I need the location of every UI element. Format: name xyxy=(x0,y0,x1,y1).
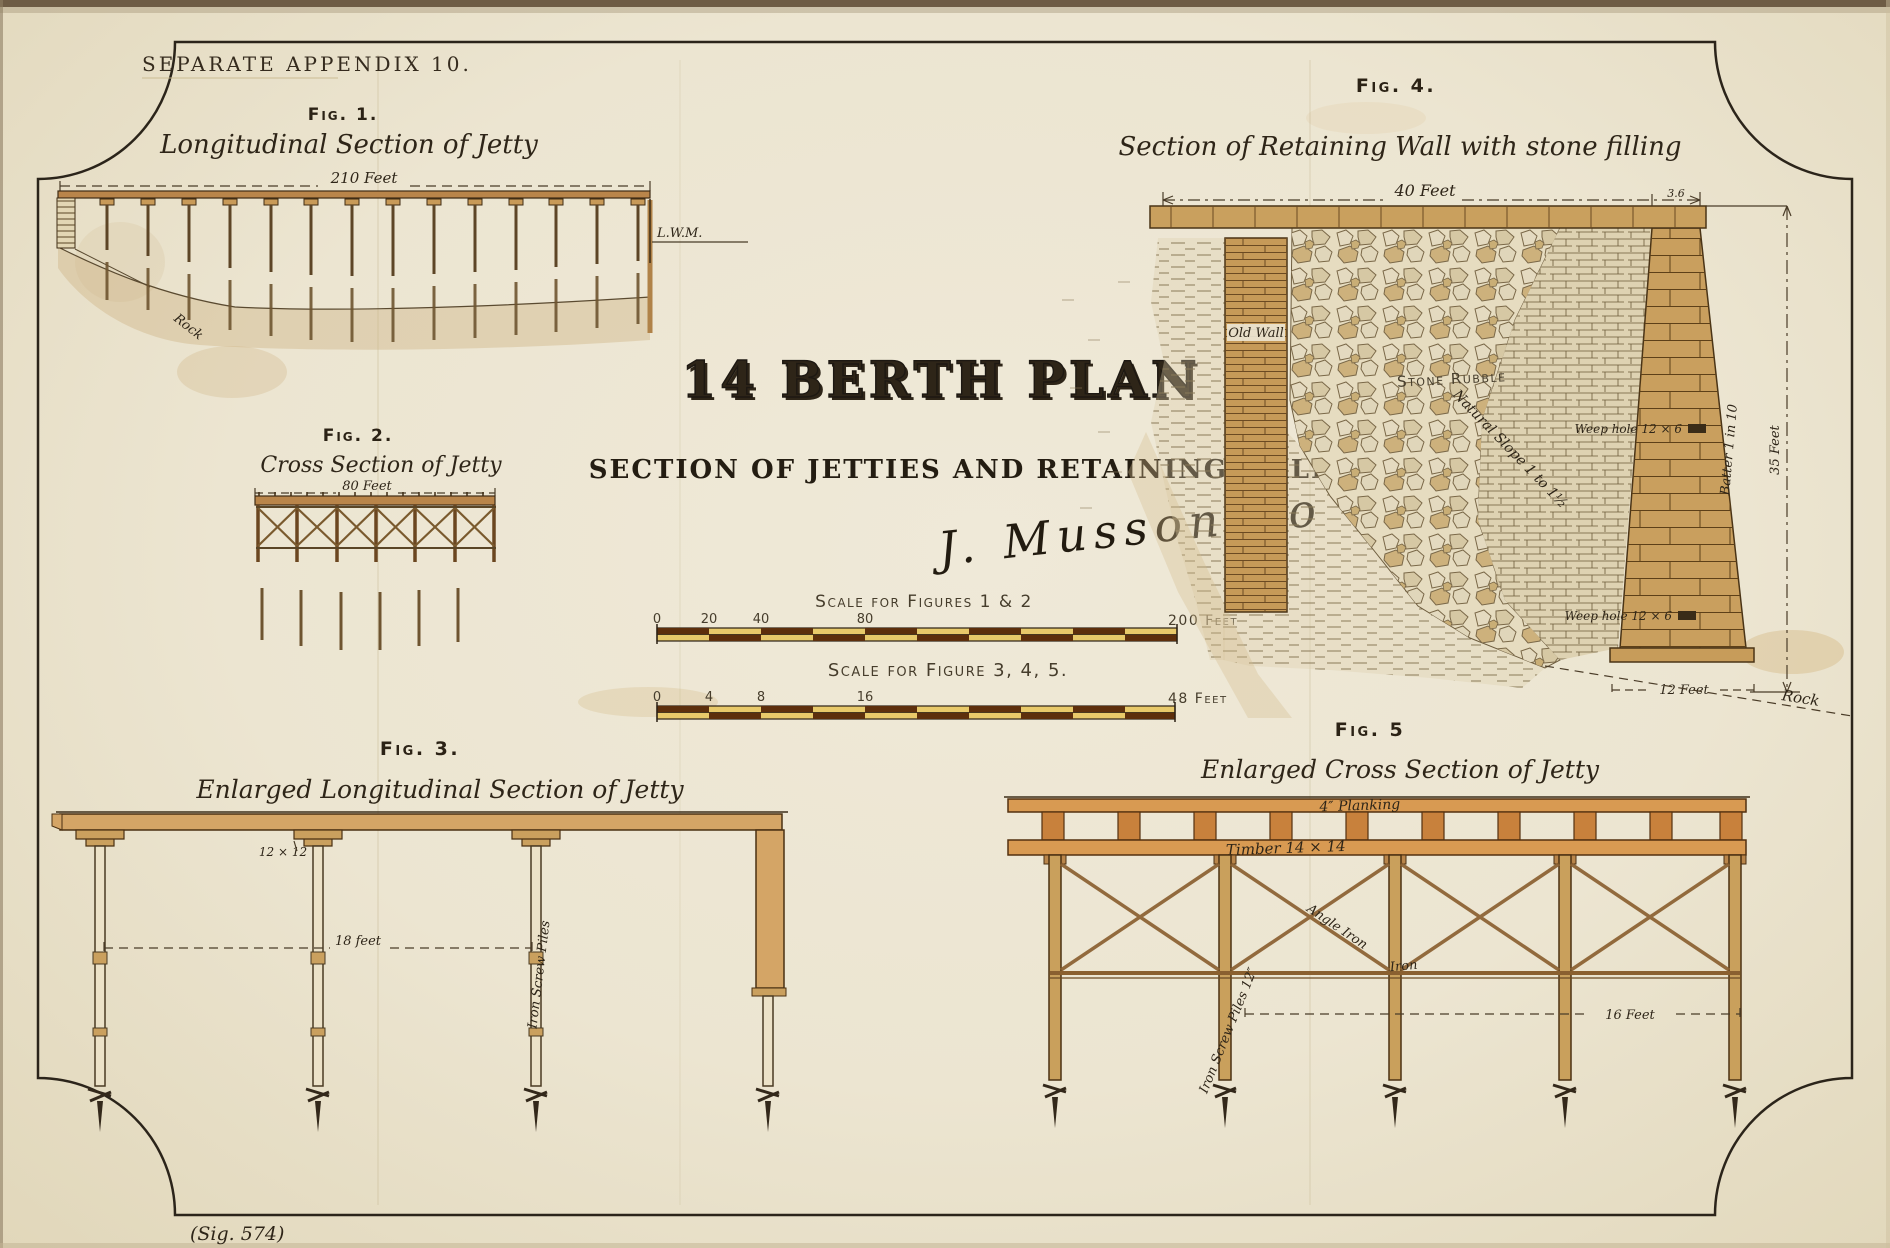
fig1-dim-210: 210 Feet xyxy=(60,169,650,191)
fig4-dim-40ft-text: 40 Feet xyxy=(1393,181,1456,200)
fig4-weep-upper-label: Weep hole 12 × 6 xyxy=(1575,422,1683,436)
fig3-deck xyxy=(60,814,782,830)
scale-fig345-end: 48 Feet xyxy=(1168,691,1228,707)
fig3-label: Fig. 3. xyxy=(380,738,460,760)
fig4-dim-40ft: 40 Feet 3.6 xyxy=(1163,181,1700,206)
fig5-screw-tip-5 xyxy=(1723,1085,1746,1128)
scale-fig345-tick-4: 4 xyxy=(705,690,713,705)
scale-fig345-tick-8: 8 xyxy=(757,690,765,705)
fig5-title: Enlarged Cross Section of Jetty xyxy=(1200,755,1600,784)
fig4-coping xyxy=(1150,206,1706,228)
scale-fig345-bar xyxy=(657,702,1175,722)
fig5-timber-label: Timber 14 × 14 xyxy=(1226,837,1346,859)
fig3-pile-note: Iron Screw Piles xyxy=(525,920,553,1031)
scale-fig345-tick-16: 16 xyxy=(857,690,874,705)
fig3-end-wall xyxy=(756,830,784,988)
fig3-screw-tip-1 xyxy=(88,1089,111,1132)
scale-fig345-group: Scale for Figure 3, 4, 5. 0 4 8 16 48 Fe… xyxy=(653,660,1228,722)
fig3-dim-span-text: 18 feet xyxy=(335,934,382,949)
fig3-screw-tip-4 xyxy=(756,1089,779,1132)
engraving-canvas: SEPARATE APPENDIX 10. Fig. 1. Longitudin… xyxy=(0,0,1890,1248)
fig3-cap-size-label: 12 × 12 xyxy=(259,845,307,859)
fig1-abutment-hatch xyxy=(57,198,75,248)
appendix-label: SEPARATE APPENDIX 10. xyxy=(142,52,472,76)
scale-fig12-bar xyxy=(657,624,1177,644)
fig5-screw-tip-4 xyxy=(1553,1085,1576,1128)
scale-fig12-tick-80: 80 xyxy=(857,612,874,627)
fig4-old-wall-bricks xyxy=(1225,238,1287,612)
scale-fig345-label: Scale for Figure 3, 4, 5. xyxy=(828,660,1068,681)
fig3-screw-tip-2 xyxy=(306,1089,329,1132)
fig5-stringer xyxy=(1008,840,1746,855)
fig4-old-wall-label: Old Wall xyxy=(1228,326,1284,341)
fig5-label: Fig. 5 xyxy=(1335,719,1406,741)
fig3-group: Fig. 3. Enlarged Longitudinal Section of… xyxy=(52,738,788,1132)
fig4-rock-label: Rock xyxy=(1780,686,1821,710)
main-title: 14 BERTH PLAN xyxy=(681,350,1200,409)
fig4-dim-base: 12 Feet xyxy=(1612,683,1754,698)
fig2-title: Cross Section of Jetty xyxy=(260,453,502,478)
fig4-weep-lower-slot xyxy=(1678,611,1696,620)
fig2-dim-text: 80 Feet xyxy=(342,479,392,494)
fig2-piles-lower xyxy=(262,588,458,650)
fig4-wall-base xyxy=(1610,648,1754,662)
drawing-sheet: SEPARATE APPENDIX 10. Fig. 1. Longitudin… xyxy=(0,0,1890,1248)
fig5-iron-label: Iron xyxy=(1388,958,1418,975)
fig4-weep-upper-slot xyxy=(1688,424,1706,433)
fig1-deck xyxy=(58,191,650,198)
fig1-group: Fig. 1. Longitudinal Section of Jetty 21… xyxy=(57,105,748,350)
fig1-piles-upper xyxy=(107,205,638,276)
fig2-label: Fig. 2. xyxy=(323,426,394,446)
scale-fig12-group: Scale for Figures 1 & 2 0 20 40 80 200 F… xyxy=(653,592,1238,644)
fig3-end-foot xyxy=(752,988,786,996)
fig1-pile-caps xyxy=(100,199,645,205)
fig4-label: Fig. 4. xyxy=(1356,75,1436,97)
fig3-title: Enlarged Longitudinal Section of Jetty xyxy=(195,775,684,804)
fig5-screw-tip-3 xyxy=(1383,1085,1406,1128)
fig1-title: Longitudinal Section of Jetty xyxy=(159,130,538,160)
fig5-screw-tip-1 xyxy=(1043,1085,1066,1128)
sig-note: (Sig. 574) xyxy=(190,1223,284,1245)
fig3-deck-left-end xyxy=(52,814,62,830)
fig4-dim-36-text: 3.6 xyxy=(1667,187,1685,200)
fig4-weep-lower-label: Weep hole 12 × 6 xyxy=(1565,609,1673,623)
fig5-joist-blocks xyxy=(1042,812,1742,840)
fig5-angle-iron-label: Angle Iron xyxy=(1303,901,1370,953)
fig3-pile-caps xyxy=(76,830,560,846)
fig5-dim-span: 16 Feet xyxy=(1245,1008,1740,1023)
scale-fig12-tick-20: 20 xyxy=(701,612,718,627)
fig3-piles xyxy=(93,846,773,1086)
fig5-group: Fig. 5 Enlarged Cross Section of Jetty 4… xyxy=(1004,719,1750,1128)
fig3-screw-tip-3 xyxy=(524,1089,547,1132)
fig2-posts xyxy=(258,505,494,562)
fig2-deck-joists xyxy=(259,492,483,496)
fig1-dim-text: 210 Feet xyxy=(330,169,399,187)
fig5-dim-span-text: 16 Feet xyxy=(1605,1008,1655,1023)
scale-fig12-tick-40: 40 xyxy=(753,612,770,627)
fig2-deck xyxy=(255,496,495,505)
fig5-screw-tip-2 xyxy=(1213,1085,1236,1128)
fig4-title: Section of Retaining Wall with stone fil… xyxy=(1118,132,1681,162)
fig1-label: Fig. 1. xyxy=(308,105,379,125)
scale-fig12-label: Scale for Figures 1 & 2 xyxy=(815,592,1033,612)
fig1-lwm-label: L.W.M. xyxy=(656,226,702,241)
fig4-dim-35ft-text: 35 Feet xyxy=(1768,424,1783,474)
